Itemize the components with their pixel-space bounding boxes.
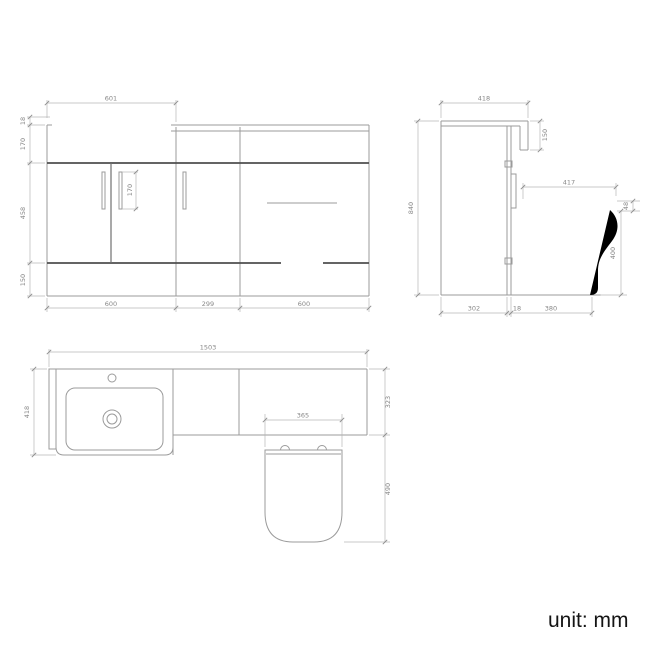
- front-toilet-pan: [268, 211, 336, 293]
- dim-seat-depth: 417: [563, 179, 575, 187]
- dim-seat-thickness: 48: [622, 202, 630, 210]
- dim-worktop-band-height: 170: [19, 138, 27, 150]
- plan-dimension-ticks: [32, 350, 387, 544]
- dim-wc-projection: 490: [384, 483, 392, 495]
- plan-waste-outer: [103, 410, 121, 428]
- plan-tap-hole: [108, 374, 116, 382]
- technical-drawing: 601 18 170 458 150 170 600 299 600: [0, 0, 650, 650]
- front-door-handles: [102, 172, 186, 209]
- plan-dimension-labels: 1503 418 323 490 365: [23, 344, 392, 496]
- dim-plinth-height: 150: [19, 274, 27, 286]
- dim-seat-height: 400: [609, 247, 617, 259]
- dim-overall-depth: 418: [478, 95, 490, 103]
- plan-view: 1503 418 323 490 365: [23, 344, 392, 545]
- side-toilet: [523, 197, 618, 295]
- dim-back-panel-thickness: 18: [513, 305, 521, 313]
- dim-pan-projection: 380: [545, 305, 557, 313]
- dim-door-height: 458: [19, 207, 27, 219]
- dim-worktop-thickness: 18: [19, 117, 27, 125]
- side-elevation-view: 418 150 840 417 48 400 302 18 380: [407, 95, 640, 318]
- dim-seat-width: 365: [297, 412, 309, 420]
- dim-worktop-return-height: 150: [541, 129, 549, 141]
- dim-handle-height: 170: [126, 184, 134, 196]
- side-toilet-seat: [523, 197, 615, 210]
- dim-basin-width: 601: [105, 95, 117, 103]
- plan-worktop-outline: [49, 369, 367, 455]
- front-toilet: [264, 198, 340, 293]
- dim-vanity-unit-width: 600: [105, 300, 117, 308]
- dim-mid-unit-width: 299: [202, 300, 214, 308]
- dim-overall-width: 1503: [200, 344, 217, 352]
- front-basin: [52, 117, 171, 148]
- drawing-sheet: 601 18 170 458 150 170 600 299 600: [0, 0, 650, 650]
- front-elevation-view: 601 18 170 458 150 170 600 299 600: [19, 95, 371, 313]
- unit-note: unit: mm: [548, 609, 629, 632]
- plan-waste-inner: [107, 414, 117, 424]
- dim-overall-height: 840: [407, 202, 415, 214]
- dim-basin-unit-depth: 418: [23, 406, 31, 418]
- dim-cabinet-depth: 302: [468, 305, 480, 313]
- plan-basin: [66, 374, 163, 450]
- plan-dimension-lines: [30, 349, 390, 542]
- dim-worktop-depth: 323: [384, 396, 392, 408]
- dim-wc-unit-width: 600: [298, 300, 310, 308]
- plan-toilet-seat: [265, 446, 342, 543]
- front-toilet-seat: [264, 198, 340, 211]
